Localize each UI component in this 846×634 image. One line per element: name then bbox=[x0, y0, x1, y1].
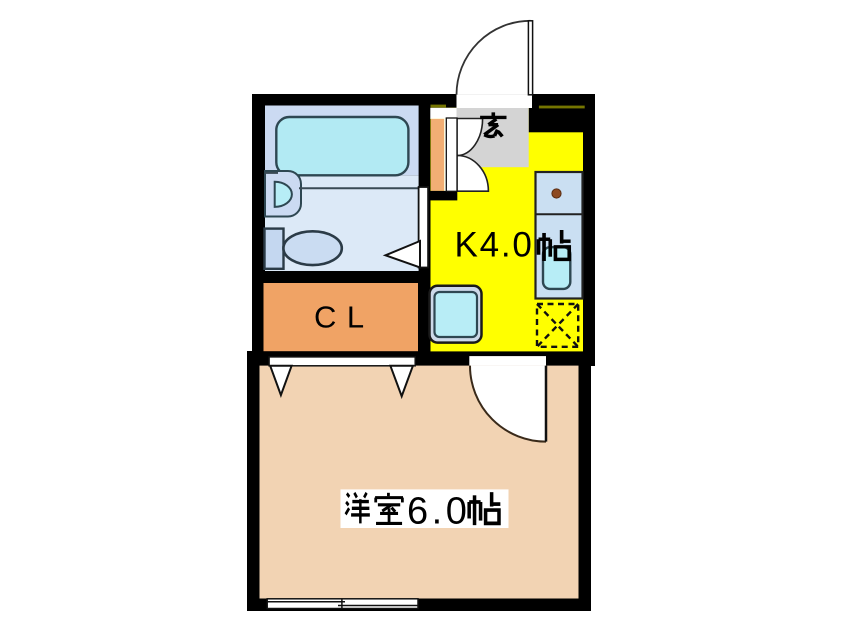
svg-text:CL: CL bbox=[314, 300, 375, 335]
svg-text:6.0: 6.0 bbox=[407, 490, 470, 532]
svg-text:K4.0: K4.0 bbox=[455, 226, 534, 265]
